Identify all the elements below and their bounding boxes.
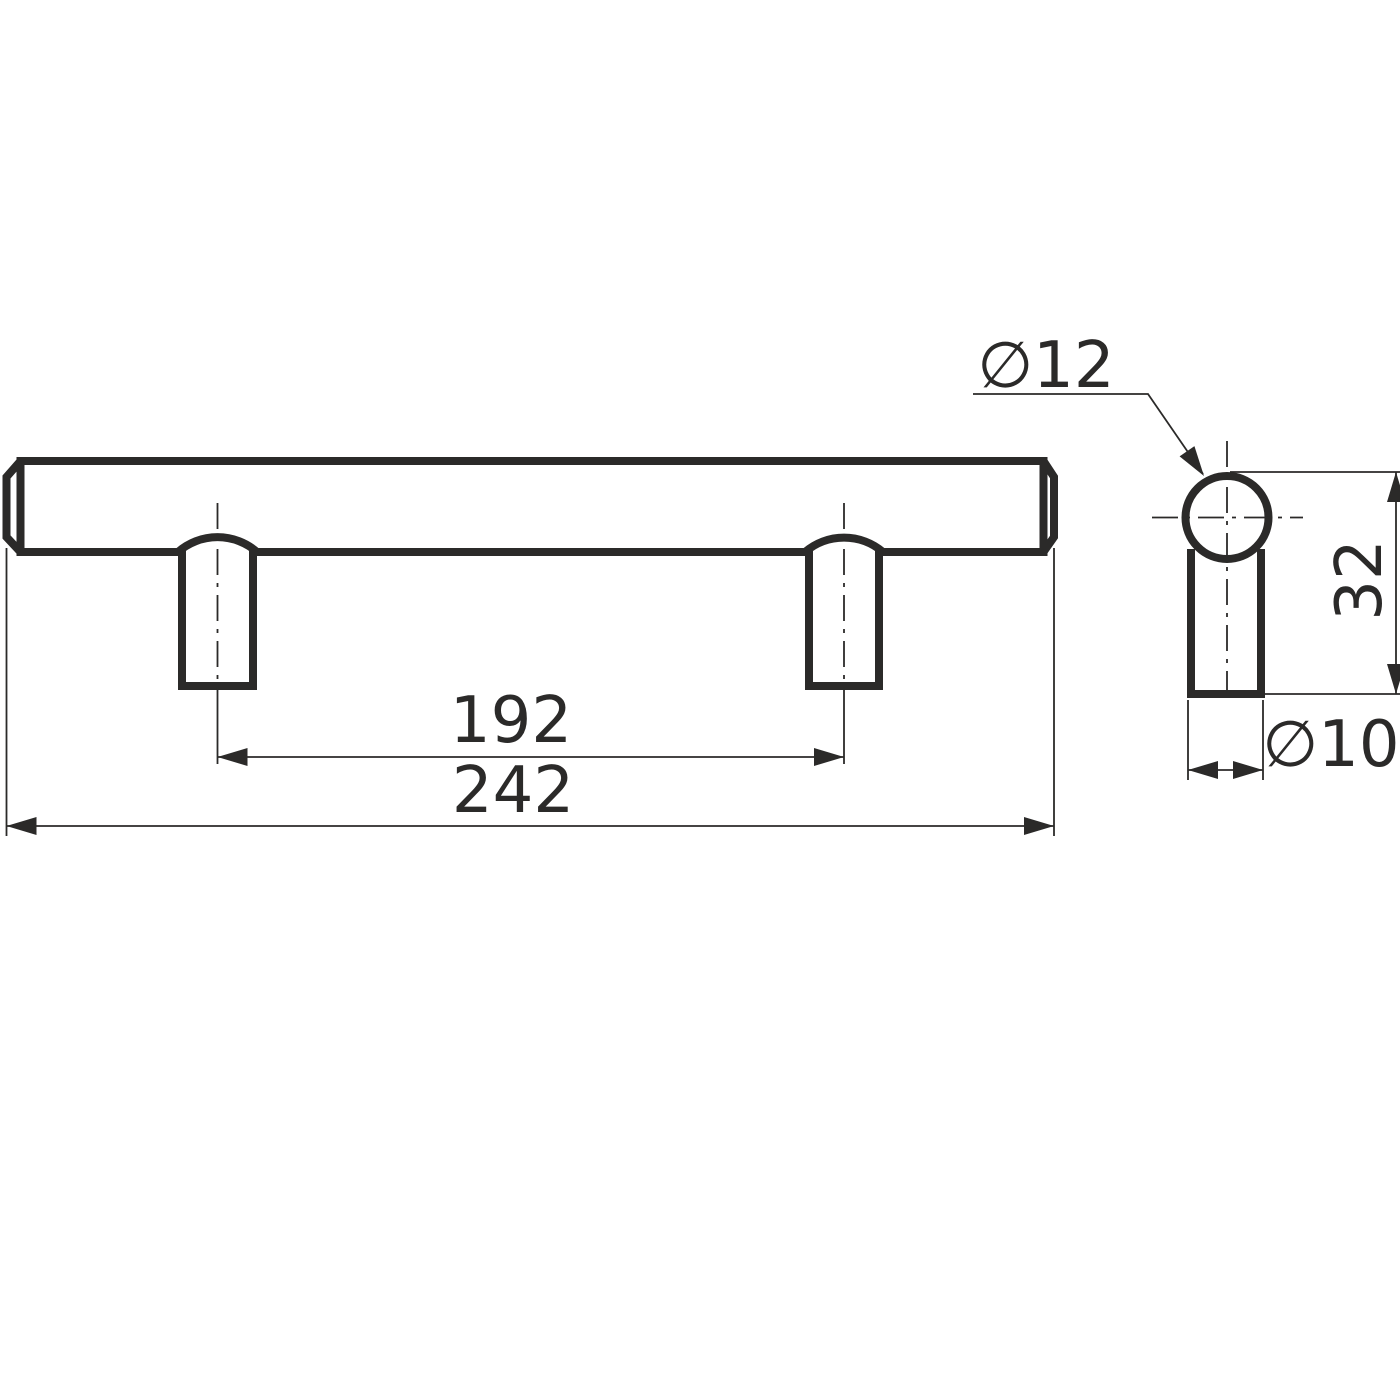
left-post — [178, 503, 257, 688]
post-diameter-label: ∅10 — [1262, 708, 1399, 782]
overall-length-label: 242 — [452, 754, 574, 828]
dimension-post-diameter: ∅10 — [1188, 700, 1400, 782]
hole-spacing-label: 192 — [450, 684, 572, 758]
arrow-down — [1387, 664, 1400, 694]
side-post-body — [1187, 549, 1265, 694]
bar-outline — [7, 457, 1055, 556]
arrow-right — [814, 748, 844, 766]
dimension-height: 32 — [1230, 472, 1400, 694]
front-view: 192 242 — [7, 457, 1055, 836]
arrow-left — [7, 817, 37, 835]
technical-drawing-svg: 192 242 ∅ — [0, 0, 1400, 1400]
leader-arrow — [1180, 446, 1212, 481]
arrow-up — [1387, 472, 1400, 502]
drawing-canvas: 192 242 ∅ — [0, 0, 1400, 1400]
arrow-right — [1024, 817, 1054, 835]
bar-diameter-label: ∅12 — [977, 329, 1114, 403]
arrow-left — [218, 748, 248, 766]
arrow-right — [1233, 761, 1263, 779]
height-label: 32 — [1323, 539, 1397, 620]
arrow-left — [1188, 761, 1218, 779]
right-post — [805, 503, 883, 688]
